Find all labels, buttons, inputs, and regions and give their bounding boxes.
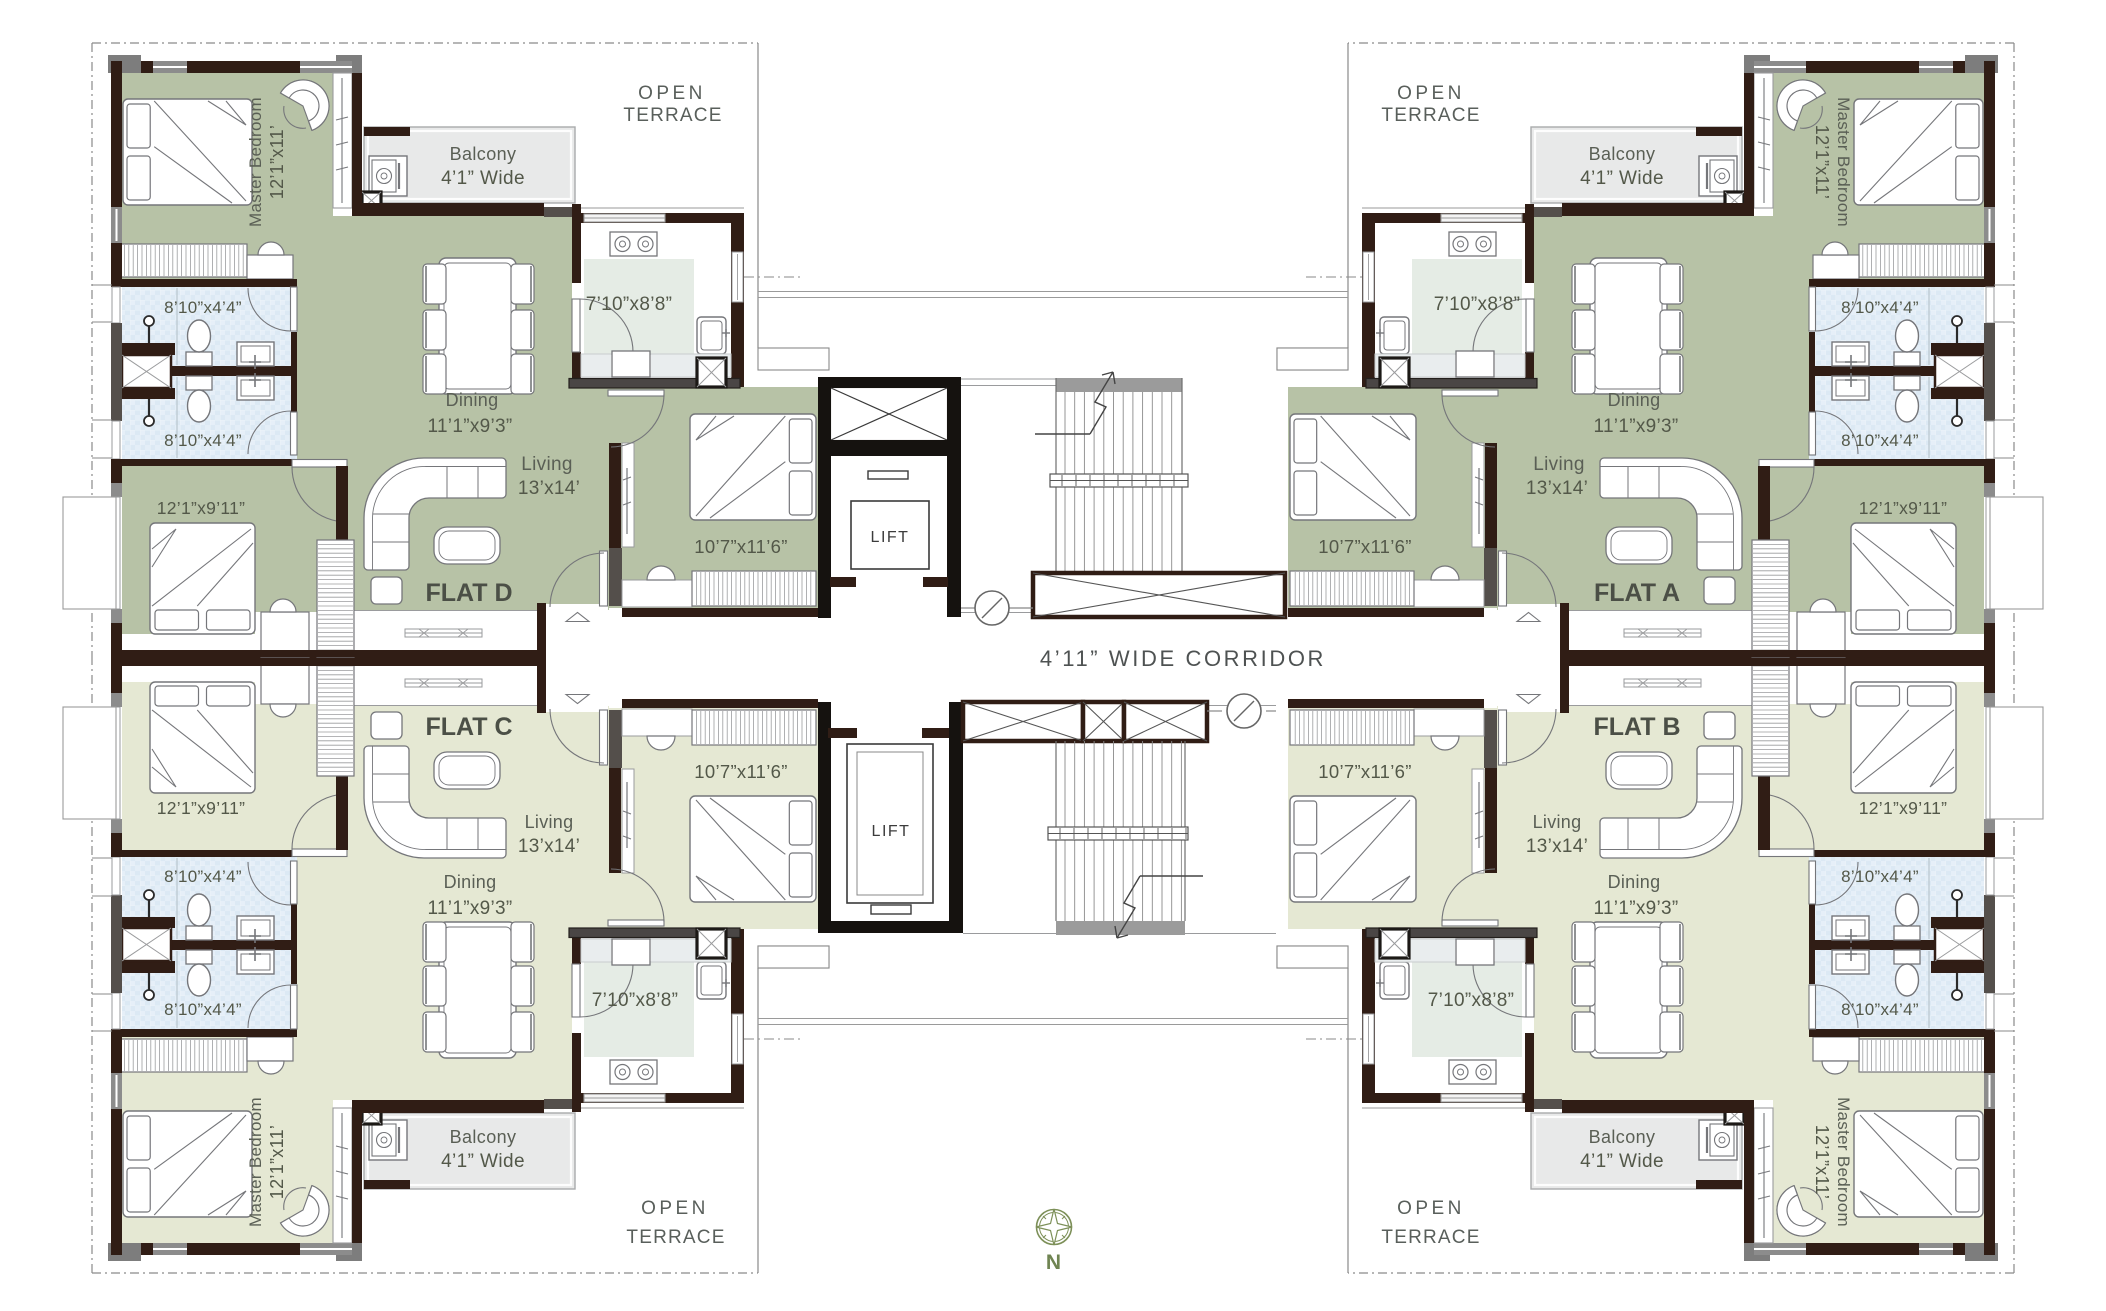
svg-text:8’10”x4’4”: 8’10”x4’4” <box>164 1000 242 1019</box>
svg-text:10’7”x11’6”: 10’7”x11’6” <box>1318 536 1411 557</box>
svg-text:13’x14’: 13’x14’ <box>1526 478 1588 499</box>
svg-text:Master Bedroom: Master Bedroom <box>246 1097 265 1227</box>
svg-text:13’x14’: 13’x14’ <box>1526 836 1588 857</box>
svg-text:Dining: Dining <box>446 390 499 410</box>
svg-text:Balcony: Balcony <box>450 1127 517 1147</box>
svg-text:Dining: Dining <box>444 872 497 892</box>
svg-text:Dining: Dining <box>1608 390 1661 410</box>
svg-text:11’1”x9’3”: 11’1”x9’3” <box>1593 416 1678 437</box>
svg-text:Master Bedroom: Master Bedroom <box>1834 1097 1853 1227</box>
svg-text:LIFT: LIFT <box>872 823 911 840</box>
svg-text:8’10”x4’4”: 8’10”x4’4” <box>1841 298 1919 317</box>
svg-text:TERRACE: TERRACE <box>1381 1227 1480 1248</box>
svg-text:10’7”x11’6”: 10’7”x11’6” <box>1318 761 1411 782</box>
svg-text:N: N <box>1046 1251 1062 1274</box>
svg-text:12’1”x11’: 12’1”x11’ <box>1812 1125 1832 1199</box>
svg-text:8’10”x4’4”: 8’10”x4’4” <box>1841 431 1919 450</box>
svg-text:4’1” Wide: 4’1” Wide <box>441 1151 525 1172</box>
svg-text:Living: Living <box>1533 812 1582 832</box>
svg-text:4’11” WIDE CORRIDOR: 4’11” WIDE CORRIDOR <box>1040 646 1326 671</box>
svg-text:12’1”x9’11”: 12’1”x9’11” <box>157 798 246 818</box>
svg-text:4’1” Wide: 4’1” Wide <box>441 168 525 189</box>
svg-text:4’1” Wide: 4’1” Wide <box>1580 168 1664 189</box>
svg-text:FLAT C: FLAT C <box>425 713 512 741</box>
svg-text:8’10”x4’4”: 8’10”x4’4” <box>164 867 242 886</box>
svg-text:LIFT: LIFT <box>871 529 910 546</box>
svg-text:Master Bedroom: Master Bedroom <box>1834 97 1853 227</box>
svg-text:12’1”x11’: 12’1”x11’ <box>267 125 287 199</box>
svg-text:Master Bedroom: Master Bedroom <box>246 97 265 227</box>
svg-text:7’10”x8’8”: 7’10”x8’8” <box>586 294 672 315</box>
svg-text:FLAT B: FLAT B <box>1593 713 1680 741</box>
svg-text:7’10”x8’8”: 7’10”x8’8” <box>1428 990 1514 1011</box>
svg-text:10’7”x11’6”: 10’7”x11’6” <box>694 536 787 557</box>
svg-text:Balcony: Balcony <box>1589 144 1656 164</box>
svg-text:TERRACE: TERRACE <box>626 1227 725 1248</box>
svg-text:Dining: Dining <box>1608 872 1661 892</box>
svg-text:11’1”x9’3”: 11’1”x9’3” <box>427 898 512 919</box>
svg-text:Balcony: Balcony <box>450 144 517 164</box>
svg-text:TERRACE: TERRACE <box>1381 105 1480 126</box>
svg-text:8’10”x4’4”: 8’10”x4’4” <box>1841 1000 1919 1019</box>
svg-text:Living: Living <box>525 812 574 832</box>
svg-text:FLAT D: FLAT D <box>425 579 512 607</box>
svg-text:OPEN: OPEN <box>638 83 706 104</box>
svg-text:11’1”x9’3”: 11’1”x9’3” <box>1593 898 1678 919</box>
svg-text:12’1”x9’11”: 12’1”x9’11” <box>157 498 246 518</box>
svg-text:TERRACE: TERRACE <box>623 105 722 126</box>
svg-text:FLAT A: FLAT A <box>1594 579 1680 607</box>
svg-text:Living: Living <box>521 454 572 475</box>
svg-text:OPEN: OPEN <box>1397 83 1465 104</box>
svg-text:12’1”x11’: 12’1”x11’ <box>267 1125 287 1199</box>
svg-text:12’1”x9’11”: 12’1”x9’11” <box>1859 798 1948 818</box>
svg-text:8’10”x4’4”: 8’10”x4’4” <box>1841 867 1919 886</box>
svg-text:13’x14’: 13’x14’ <box>518 836 580 857</box>
svg-text:10’7”x11’6”: 10’7”x11’6” <box>694 761 787 782</box>
svg-text:13’x14’: 13’x14’ <box>518 478 580 499</box>
svg-text:8’10”x4’4”: 8’10”x4’4” <box>164 431 242 450</box>
svg-text:OPEN: OPEN <box>641 1198 709 1219</box>
svg-text:OPEN: OPEN <box>1397 1198 1465 1219</box>
svg-text:4’1” Wide: 4’1” Wide <box>1580 1151 1664 1172</box>
svg-text:12’1”x11’: 12’1”x11’ <box>1812 125 1832 199</box>
svg-text:7’10”x8’8”: 7’10”x8’8” <box>592 990 678 1011</box>
svg-text:12’1”x9’11”: 12’1”x9’11” <box>1859 498 1948 518</box>
svg-text:Living: Living <box>1533 454 1584 475</box>
svg-text:Balcony: Balcony <box>1589 1127 1656 1147</box>
svg-text:8’10”x4’4”: 8’10”x4’4” <box>164 298 242 317</box>
svg-text:7’10”x8’8”: 7’10”x8’8” <box>1434 294 1520 315</box>
svg-text:11’1”x9’3”: 11’1”x9’3” <box>427 416 512 437</box>
